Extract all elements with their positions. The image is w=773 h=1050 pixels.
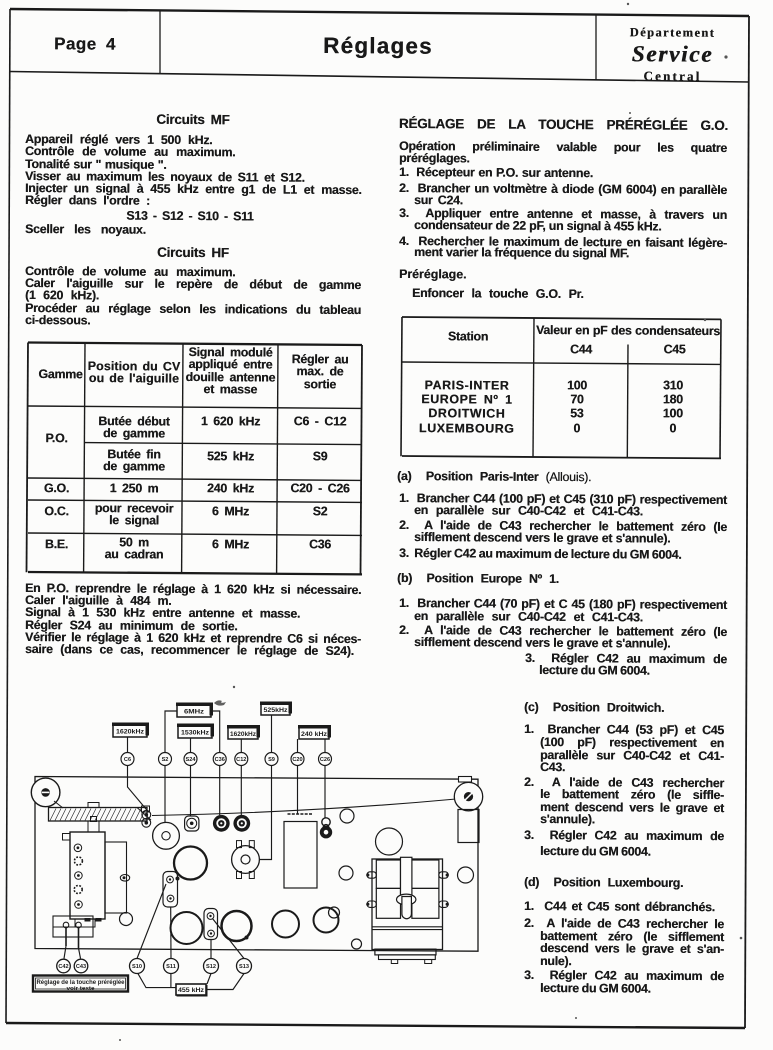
svg-text:1530kHz: 1530kHz	[181, 730, 210, 737]
svg-text:S10: S10	[132, 964, 142, 970]
svg-text:1620kHz: 1620kHz	[230, 731, 257, 738]
svg-text:S2: S2	[162, 757, 169, 763]
svg-text:525kHz: 525kHz	[264, 707, 289, 714]
svg-text:6MHz: 6MHz	[184, 709, 205, 716]
svg-text:C20: C20	[292, 757, 302, 763]
svg-text:S12: S12	[206, 964, 216, 970]
svg-text:C12: C12	[236, 757, 246, 763]
svg-text:C36: C36	[215, 757, 225, 763]
svg-text:S13: S13	[239, 964, 249, 970]
svg-text:C42: C42	[58, 964, 68, 970]
svg-text:240 kHz: 240 kHz	[301, 731, 328, 738]
svg-text:S24: S24	[186, 757, 197, 763]
svg-text:C43: C43	[76, 964, 86, 970]
svg-text:C6: C6	[124, 757, 131, 763]
svg-text:455 kHz: 455 kHz	[178, 987, 204, 994]
svg-text:C26: C26	[320, 757, 330, 763]
svg-text:S9: S9	[268, 757, 275, 763]
svg-text:voir texte: voir texte	[67, 986, 95, 992]
svg-text:1620kHz: 1620kHz	[116, 729, 145, 736]
svg-text:S11: S11	[166, 964, 176, 970]
